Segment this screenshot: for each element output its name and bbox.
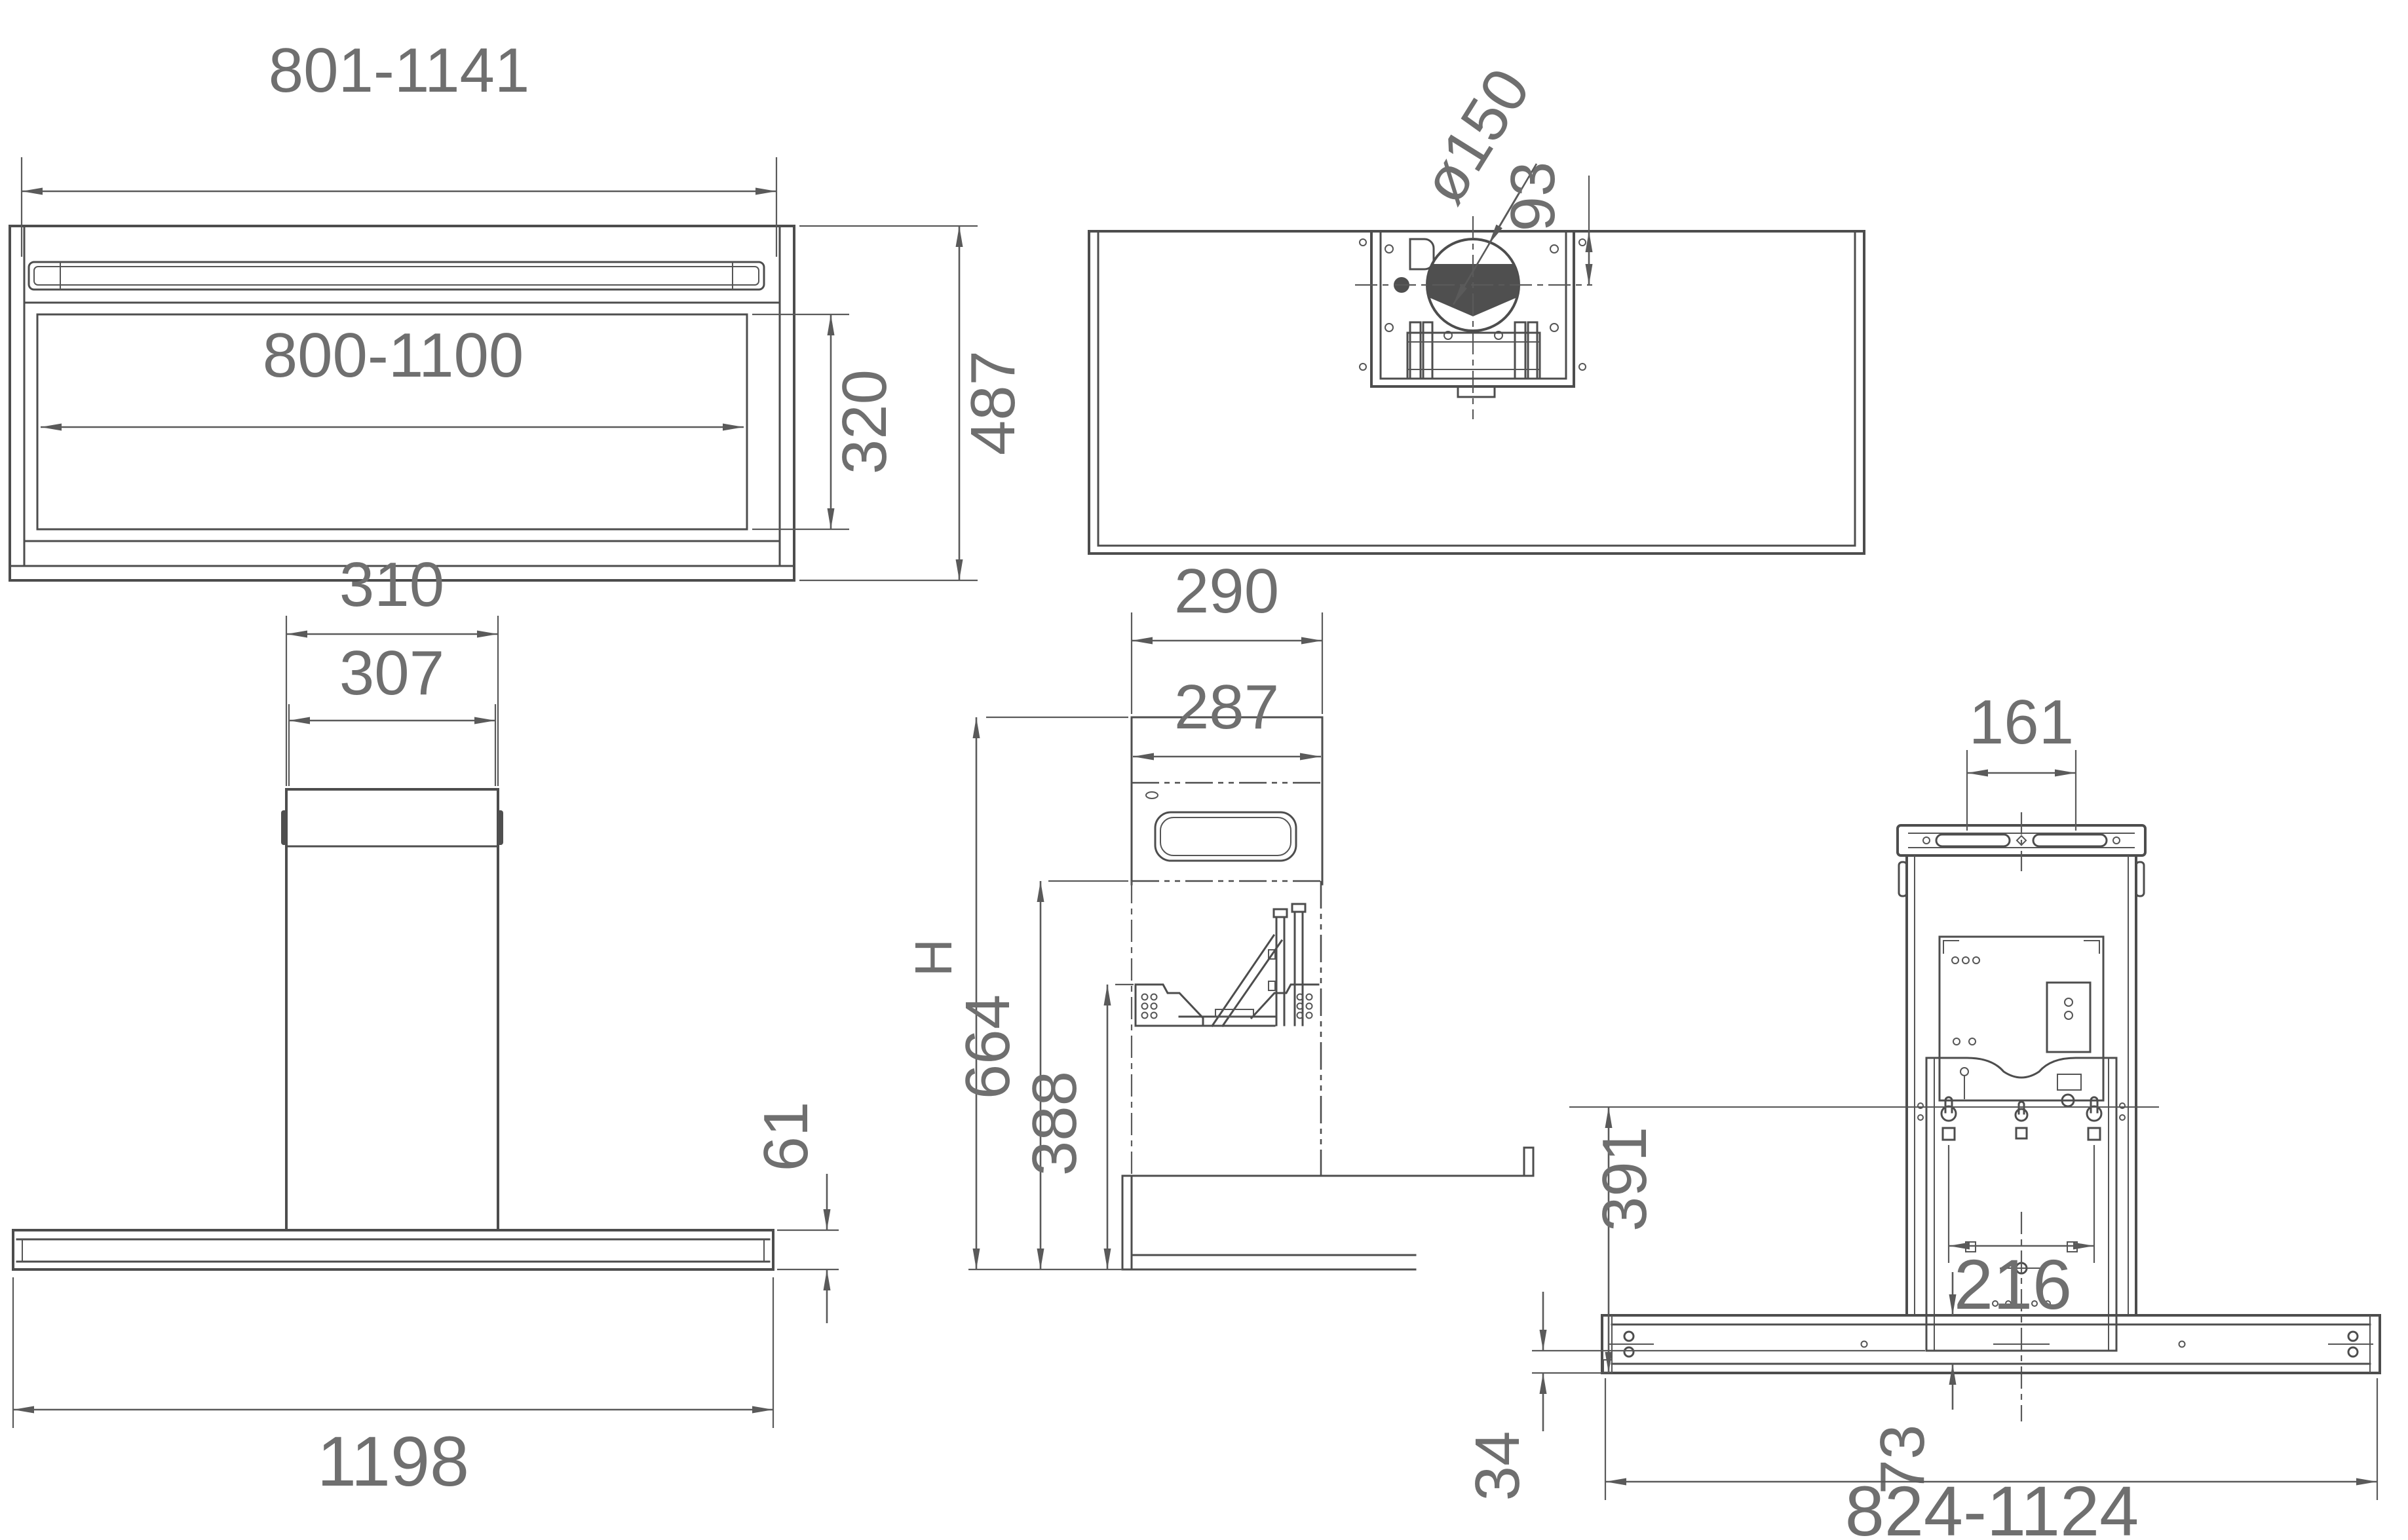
dim-rear-width-range-label: 824-1124 (1845, 1471, 2139, 1540)
screw-hole (1550, 245, 1558, 253)
screw-hole (1385, 245, 1393, 253)
dim-chimney-inner-width: 307 (289, 638, 495, 786)
rivet (1360, 364, 1366, 370)
end-screw (1624, 1332, 1634, 1341)
dim-duct-offset-label: 93 (1498, 162, 1568, 232)
dim-total-height-label: H (904, 939, 963, 977)
dim-inner-height: 320 (752, 314, 900, 529)
dim-inner-width-range-label: 800-1100 (263, 320, 524, 390)
dim-inner-height-label: 320 (830, 369, 900, 474)
dim-keyhole-spacing: 216 (1949, 1145, 2094, 1324)
dim-canopy-width-label: 1198 (317, 1421, 469, 1501)
light-strip-inner (34, 267, 759, 285)
rivet (1579, 364, 1586, 370)
dim-vent-spacing-label: 161 (1969, 687, 2074, 757)
duct-housing-box (1360, 216, 1586, 419)
dim-depth-inner: 287 (1133, 672, 1321, 757)
cable-bracket (1410, 239, 1434, 269)
dim-outer-width-range: 801-1141 (22, 35, 776, 257)
rivet (1360, 239, 1366, 246)
side-pinhole (1146, 792, 1158, 798)
side-view: 290 287 H 664 388 (904, 556, 1533, 1269)
dim-height-low-label: 388 (1020, 1071, 1090, 1176)
end-screw (2348, 1347, 2358, 1357)
screw-hole (1550, 324, 1558, 331)
canopy-rear (1602, 1315, 2380, 1373)
panel-outer-frame (10, 226, 794, 580)
dim-canopy-height-label: 61 (751, 1102, 821, 1172)
cap-screw (2113, 837, 2120, 844)
side-slot-outer (1155, 812, 1296, 861)
technical-drawing-sheet: 801-1141 800-1100 320 487 (0, 0, 2408, 1540)
dim-bottom-gap-label: 34 (1462, 1431, 1533, 1501)
dim-chimney-inner-width-label: 307 (339, 638, 444, 708)
chimney-tab-left (281, 810, 287, 845)
motor-mount-plate (1940, 937, 2103, 1106)
dim-canopy-width: 1198 (13, 1277, 773, 1501)
front-top-panel-view: 801-1141 800-1100 320 487 (10, 35, 1028, 580)
dim-depth-inner-label: 287 (1174, 672, 1279, 742)
cooker-hood-dimension-drawing: 801-1141 800-1100 320 487 (0, 0, 2408, 1540)
dim-height-mid-label: 664 (953, 994, 1023, 1099)
slab-rivet (2179, 1342, 2185, 1347)
dim-inner-width-range: 800-1100 (41, 320, 744, 427)
internal-mount-mechanism (1136, 904, 1318, 1026)
dim-depth-outer-label: 290 (1174, 556, 1279, 626)
screw-hole (1385, 324, 1393, 331)
cable-clamp (2057, 1074, 2081, 1090)
dim-vent-spacing: 161 (1967, 687, 2076, 831)
front-view: 310 307 61 1198 (13, 550, 839, 1501)
canopy-side-section (1122, 1148, 1533, 1269)
end-screw (1624, 1347, 1634, 1357)
rear-view: 161 216 391 34 73 (1462, 687, 2380, 1540)
dim-canopy-height: 61 (751, 1102, 839, 1323)
dim-keyhole-spacing-label: 216 (1954, 1245, 2072, 1324)
chimney-tab-right (497, 810, 503, 845)
vent-slot-left (1936, 835, 2010, 846)
side-slot-inner (1160, 817, 1291, 855)
dim-chimney-outer-width-label: 310 (339, 550, 444, 620)
top-view: ø150 93 (1089, 57, 1864, 554)
dim-bracket-height-label: 391 (1590, 1127, 1660, 1231)
slab-end-notch (1603, 1360, 1612, 1373)
canopy-front (13, 1230, 773, 1269)
keyhole-left (1941, 1097, 1956, 1140)
dim-bottom-gap: 34 (1462, 1292, 1925, 1501)
dim-outer-width-range-label: 801-1141 (269, 35, 530, 105)
duct-box-tab (1458, 386, 1495, 397)
cap-screw (1923, 837, 1930, 844)
end-screw (2348, 1332, 2358, 1341)
dim-body-offset: 73 (1867, 1272, 1953, 1494)
slab-rivet (1862, 1342, 1867, 1347)
rivet (1579, 239, 1586, 246)
dim-height-low: 388 (1020, 985, 1134, 1269)
keyhole-right (2087, 1097, 2101, 1140)
terminal-box (2047, 983, 2090, 1052)
dim-rear-width-range: 824-1124 (1605, 1378, 2377, 1540)
canopy-rear-tab (1524, 1148, 1533, 1176)
dim-total-height: H (904, 717, 1128, 1269)
vent-slot-right (2033, 835, 2107, 846)
dim-overall-height-label: 487 (958, 350, 1028, 455)
